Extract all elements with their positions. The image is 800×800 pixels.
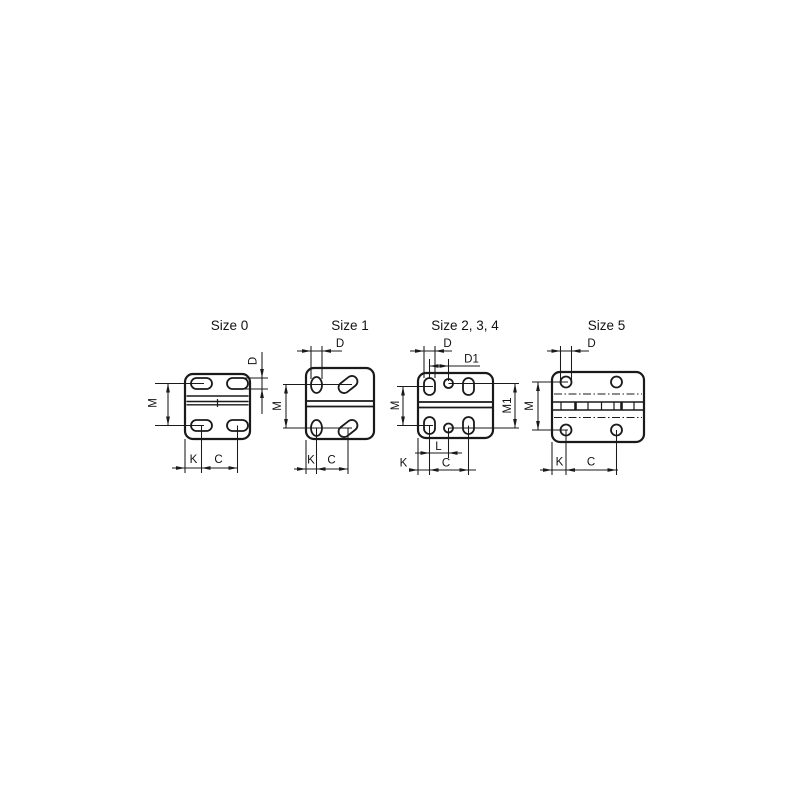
dim-label-d: D — [587, 338, 595, 350]
dim-label-k: K — [190, 454, 198, 466]
dim-label-c: C — [442, 458, 450, 470]
size-2-3-4-title: Size 2, 3, 4 — [431, 318, 499, 333]
size-1-drawing: Size 1 D M — [272, 318, 374, 474]
dim-label-m: M — [390, 401, 402, 411]
round-hole-top-right — [611, 377, 622, 388]
dimension-diagram: Size 0 M D — [0, 0, 800, 800]
dim-label-c: C — [587, 457, 595, 469]
size-5-drawing: Size 5 D — [524, 318, 644, 475]
size-2-3-4-drawing: Size 2, 3, 4 D D1 — [390, 318, 519, 475]
technical-drawing-canvas: Size 0 M D — [0, 0, 800, 800]
dim-label-d: D — [443, 338, 451, 350]
slot-hole-top-right — [227, 378, 248, 389]
dim-label-m: M — [272, 401, 284, 411]
dim-label-m: M — [148, 398, 160, 408]
slot-hole-top-right — [463, 378, 474, 395]
dim-label-d: D — [248, 357, 260, 365]
dim-label-k: K — [400, 458, 408, 470]
dim-label-l: L — [435, 441, 442, 453]
dim-label-m: M — [524, 401, 536, 411]
dim-label-c: C — [327, 455, 335, 467]
size-0-drawing: Size 0 M D — [148, 318, 269, 473]
size-0-title: Size 0 — [211, 318, 249, 333]
size-1-title: Size 1 — [331, 318, 369, 333]
dim-label-c: C — [214, 454, 222, 466]
dim-label-d1: D1 — [464, 354, 479, 366]
dim-label-d: D — [336, 338, 344, 350]
dim-label-k: K — [307, 455, 315, 467]
dim-label-k: K — [556, 457, 564, 469]
size-5-title: Size 5 — [588, 318, 626, 333]
dim-label-m1: M1 — [502, 398, 514, 414]
